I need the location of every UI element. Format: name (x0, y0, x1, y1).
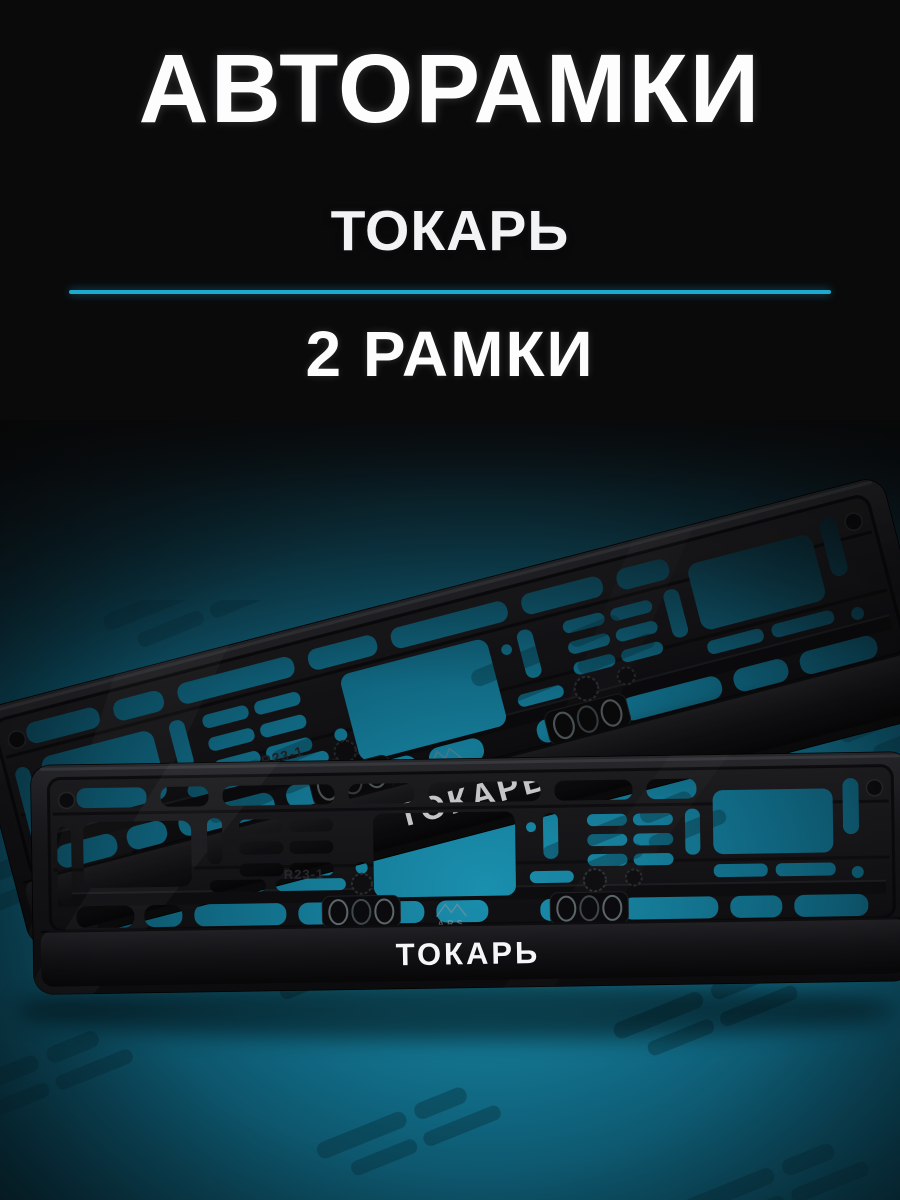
model-name: ТОКАРЬ (0, 203, 900, 260)
vignette (0, 420, 900, 1200)
plate-frames-scene: R23-1 ARS ТОКАРЬ (0, 420, 900, 1200)
cyan-divider (69, 290, 831, 294)
poster-title: АВТОРАМКИ (0, 0, 900, 137)
quantity-label: 2 РАМКИ (0, 322, 900, 386)
headline-block: АВТОРАМКИ ТОКАРЬ 2 РАМКИ (0, 0, 900, 420)
product-photo: R23-1 ARS ТОКАРЬ (0, 420, 900, 1200)
product-poster: АВТОРАМКИ ТОКАРЬ 2 РАМКИ (0, 0, 900, 1200)
